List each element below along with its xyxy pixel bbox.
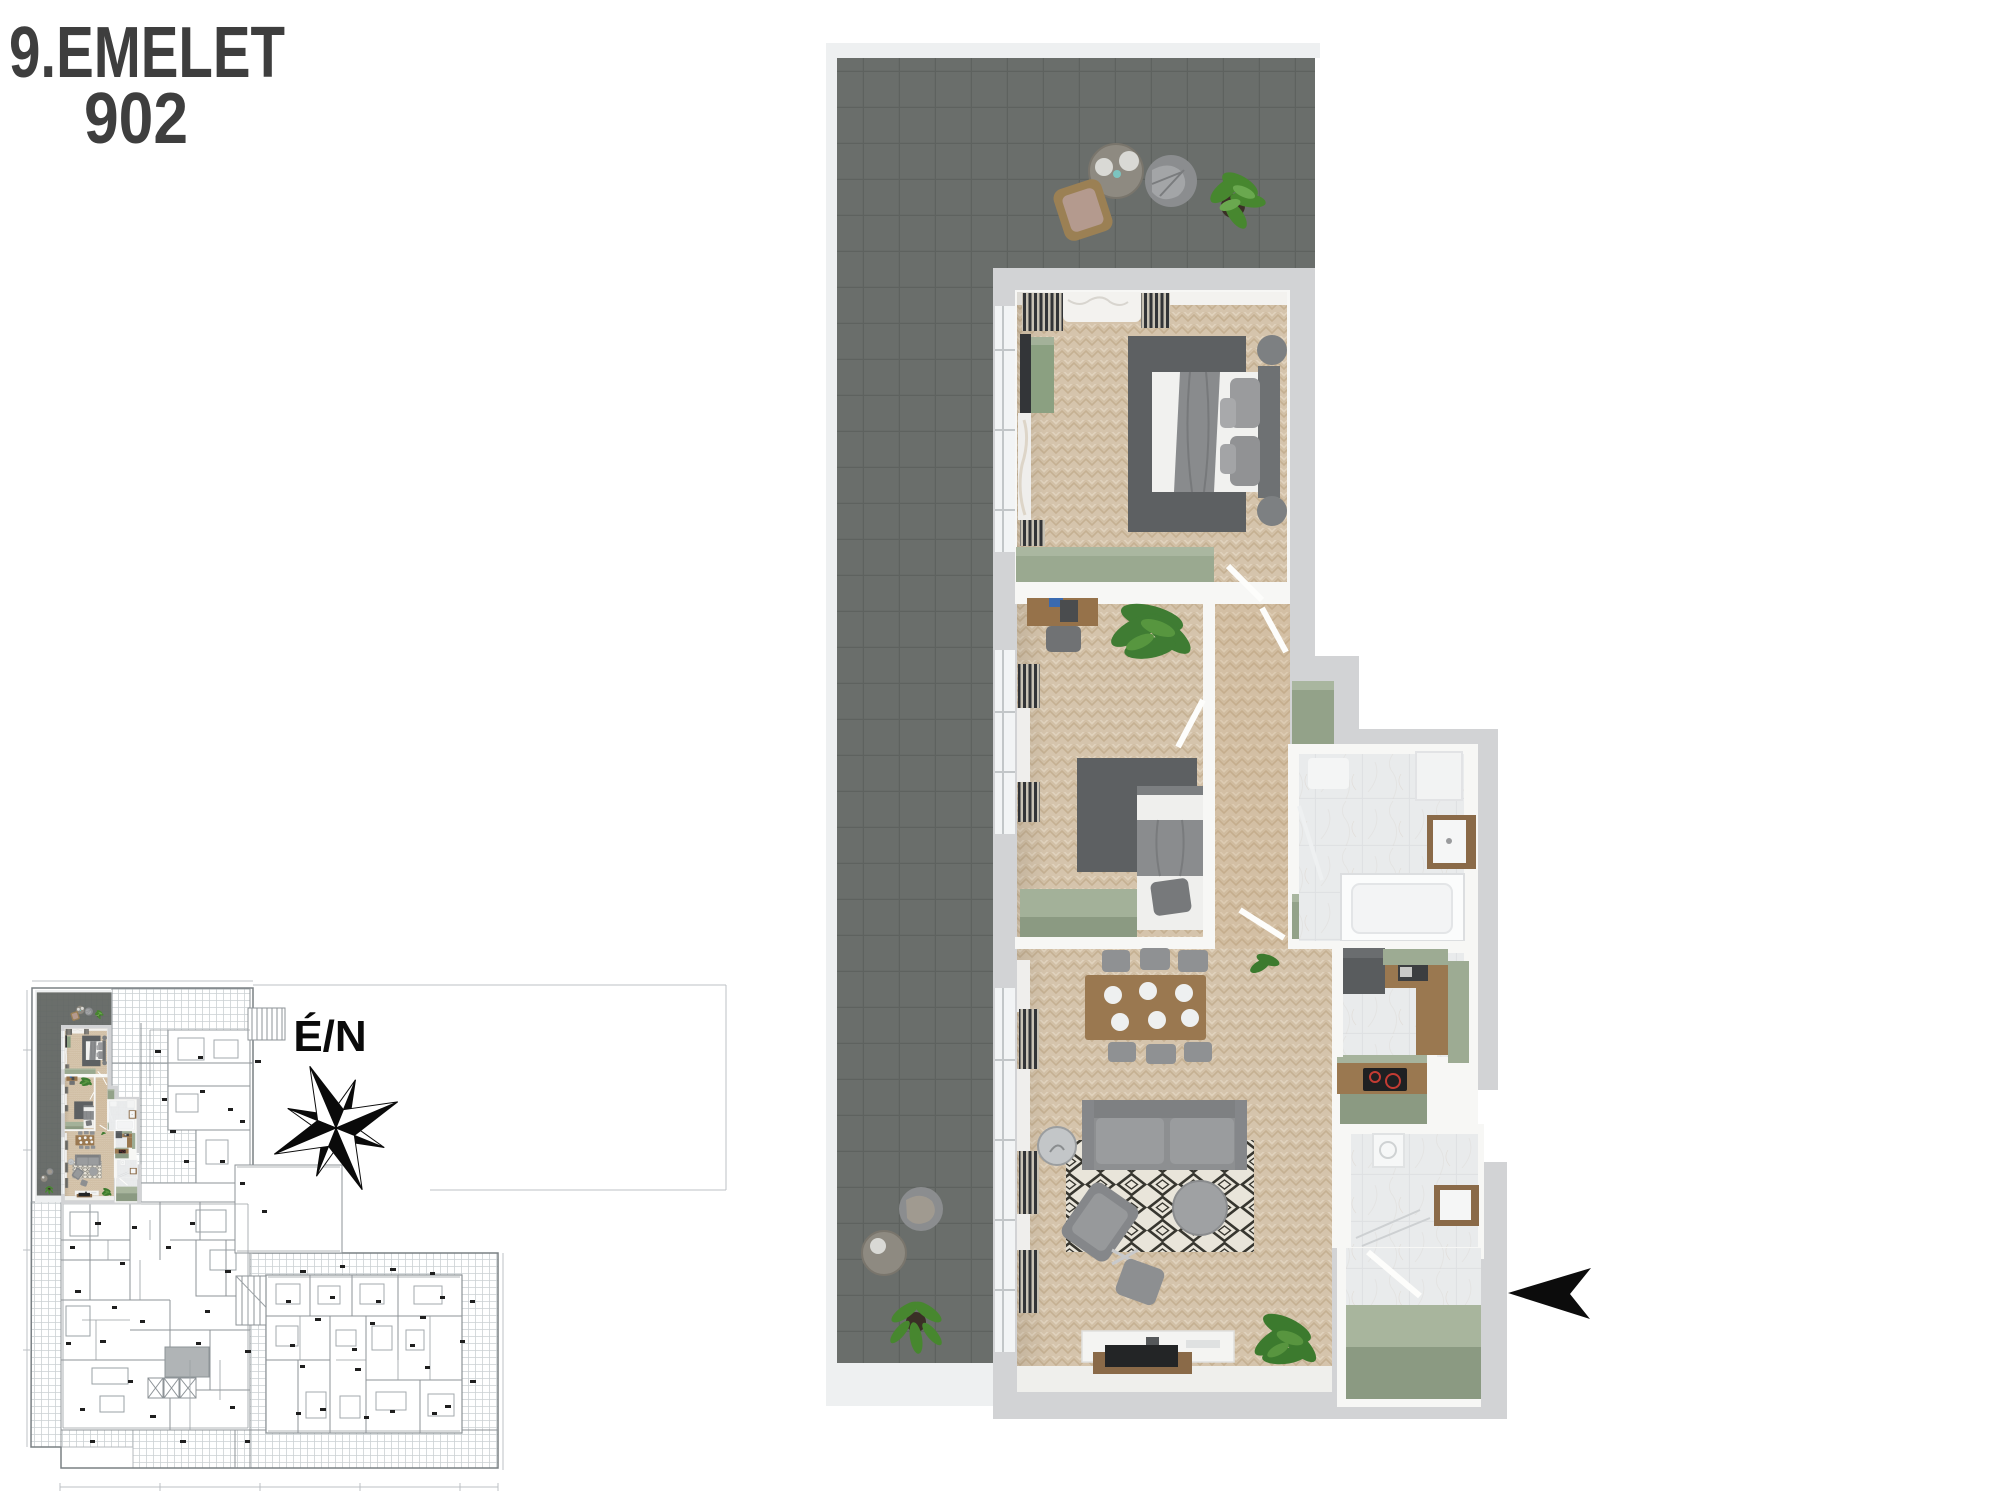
svg-text:902: 902 — [84, 79, 188, 159]
svg-text:É/N: É/N — [293, 1011, 366, 1061]
